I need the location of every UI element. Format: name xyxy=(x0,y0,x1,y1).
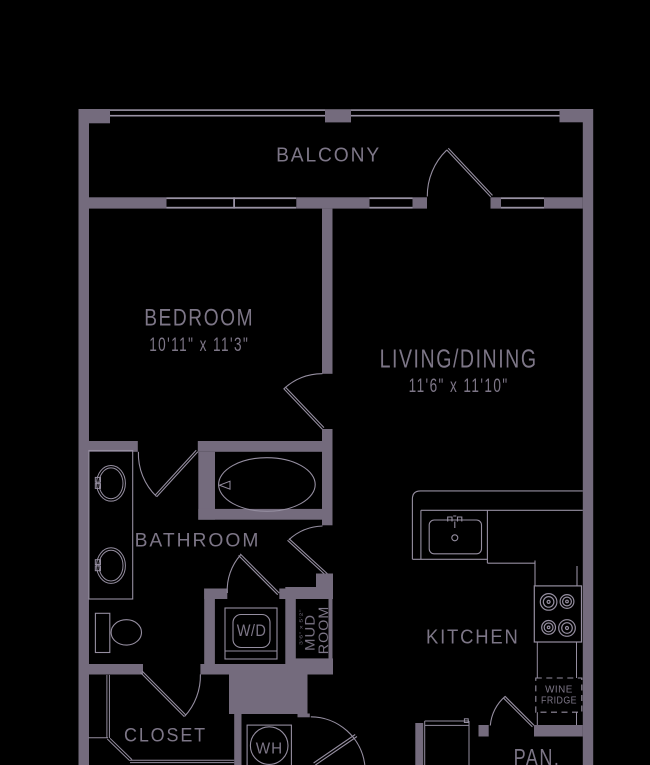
svg-text:BEDROOM: BEDROOM xyxy=(144,304,254,331)
svg-text:FRIDGE: FRIDGE xyxy=(541,696,577,707)
svg-text:3'6" x 5'2": 3'6" x 5'2" xyxy=(299,609,304,645)
svg-text:11'6" x 11'10": 11'6" x 11'10" xyxy=(409,376,509,397)
svg-text:KITCHEN: KITCHEN xyxy=(426,626,520,649)
svg-text:PAN.: PAN. xyxy=(514,745,561,765)
svg-text:ROOM: ROOM xyxy=(316,606,331,655)
svg-text:WINE: WINE xyxy=(545,685,573,696)
svg-text:LIVING/DINING: LIVING/DINING xyxy=(380,345,538,373)
svg-text:BALCONY: BALCONY xyxy=(276,144,381,167)
svg-text:CLOSET: CLOSET xyxy=(124,725,207,746)
svg-text:BATHROOM: BATHROOM xyxy=(135,531,261,552)
svg-text:W/D: W/D xyxy=(237,621,267,640)
svg-text:10'11" x 11'3": 10'11" x 11'3" xyxy=(149,335,249,356)
svg-text:WH: WH xyxy=(256,740,283,757)
